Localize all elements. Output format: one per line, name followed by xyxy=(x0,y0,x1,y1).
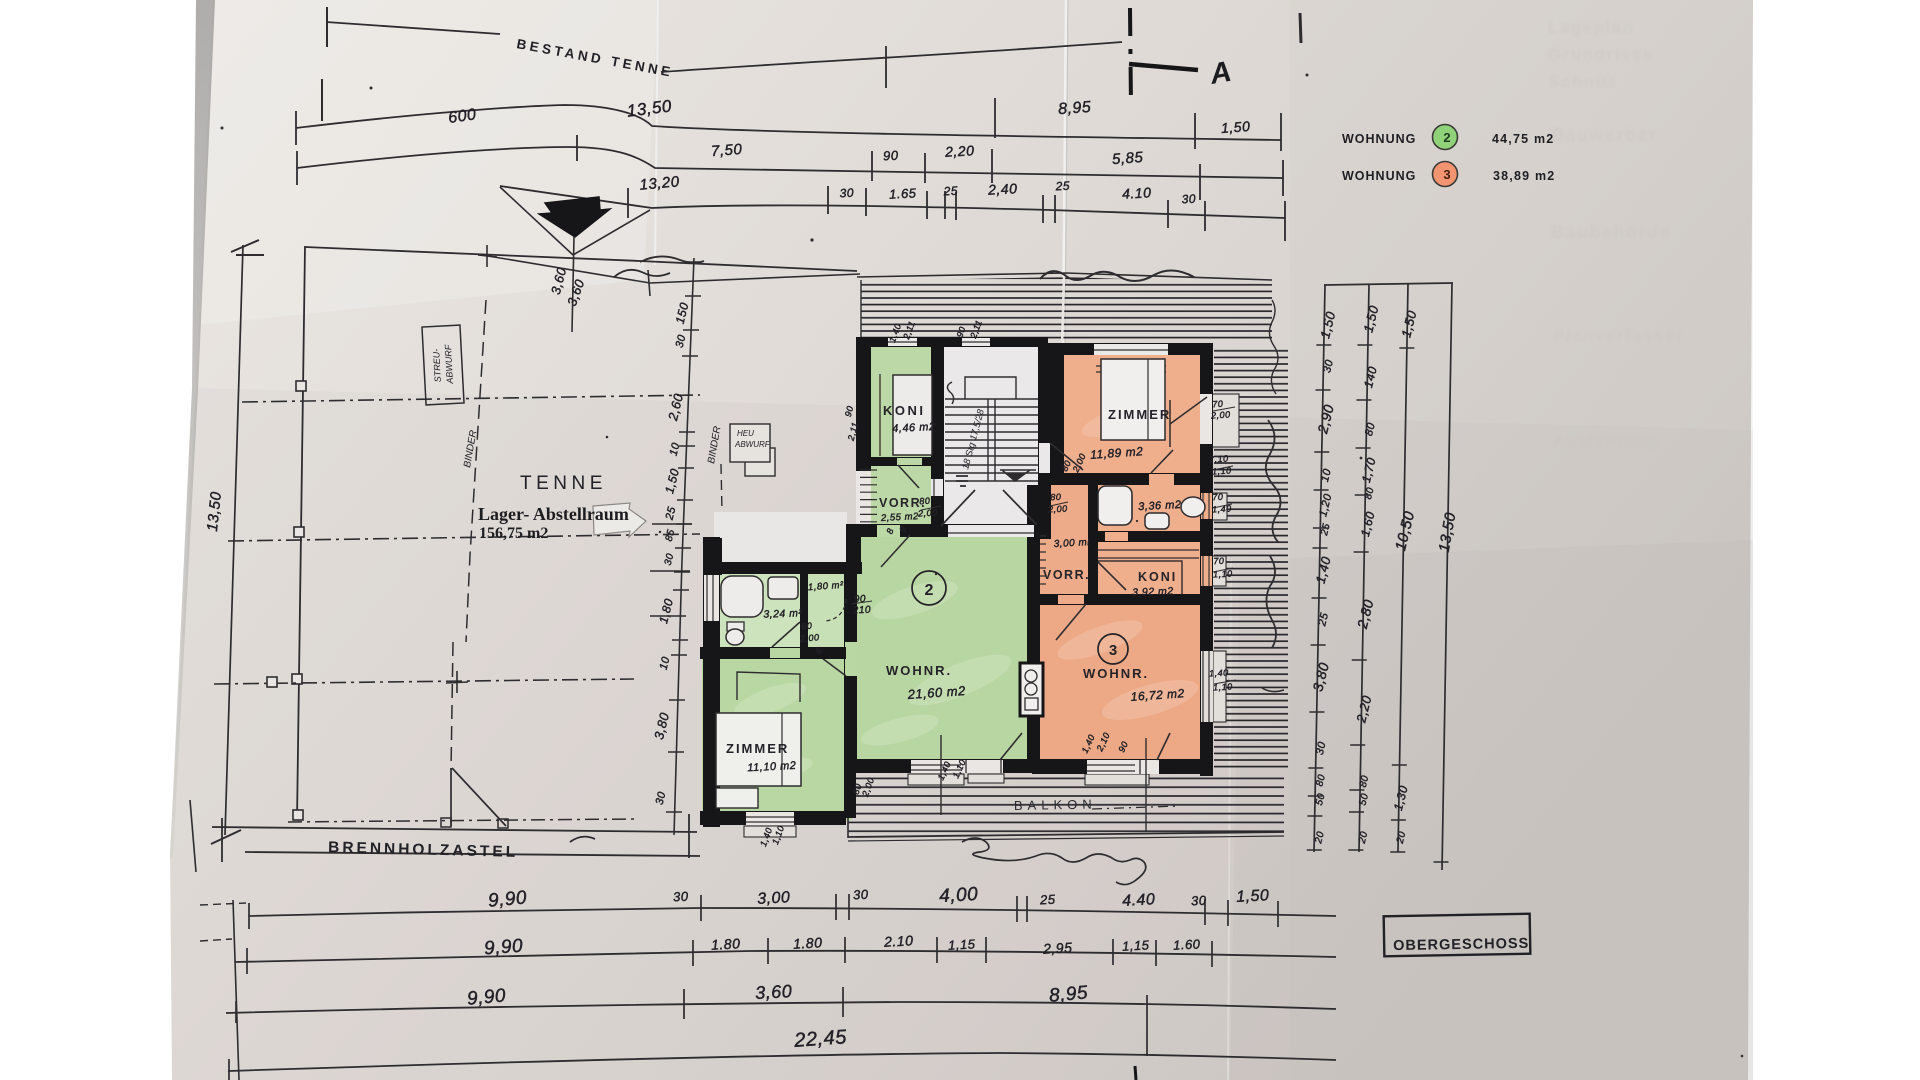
svg-text:BALKON: BALKON xyxy=(1014,797,1097,813)
svg-text:90: 90 xyxy=(883,148,899,164)
svg-text:80: 80 xyxy=(919,496,931,507)
svg-text:1,10: 1,10 xyxy=(1212,465,1232,476)
svg-text:25: 25 xyxy=(1039,892,1056,908)
svg-text:2,00: 2,00 xyxy=(1210,409,1231,420)
svg-text:Schnitt: Schnitt xyxy=(1548,72,1616,91)
svg-text:2: 2 xyxy=(925,582,934,599)
svg-text:8,95: 8,95 xyxy=(1048,982,1089,1006)
svg-text:9,90: 9,90 xyxy=(483,936,523,960)
svg-text:8,95: 8,95 xyxy=(1058,99,1092,118)
svg-text:70: 70 xyxy=(1213,556,1225,567)
svg-text:30: 30 xyxy=(1181,192,1196,207)
svg-text:80: 80 xyxy=(1050,492,1062,503)
svg-text:9,90: 9,90 xyxy=(466,985,507,1009)
svg-text:30: 30 xyxy=(673,889,689,905)
svg-text:7,10: 7,10 xyxy=(1209,453,1229,464)
svg-text:2,55 m2: 2,55 m2 xyxy=(880,511,920,524)
svg-text:2,40: 2,40 xyxy=(987,180,1018,198)
svg-text:4.10: 4.10 xyxy=(1122,184,1152,202)
svg-text:WOHNUNG: WOHNUNG xyxy=(1342,169,1416,183)
svg-text:3: 3 xyxy=(1443,167,1450,182)
svg-text:1,10: 1,10 xyxy=(1213,681,1233,692)
svg-text:ABWURF: ABWURF xyxy=(443,344,455,385)
svg-text:ZIMMER: ZIMMER xyxy=(1108,407,1171,422)
svg-text:30: 30 xyxy=(839,186,854,201)
svg-text:1.80: 1.80 xyxy=(711,935,741,953)
svg-text:1,40: 1,40 xyxy=(1209,667,1229,678)
svg-text:OBERGESCHOSS: OBERGESCHOSS xyxy=(1393,936,1529,954)
svg-text:2: 2 xyxy=(1443,130,1450,145)
svg-text:1,15: 1,15 xyxy=(948,936,976,952)
svg-text:25: 25 xyxy=(942,184,958,199)
svg-text:Ausführung: Ausführung xyxy=(1553,433,1659,450)
svg-text:22,45: 22,45 xyxy=(793,1026,848,1052)
svg-text:1.60: 1.60 xyxy=(1173,936,1201,952)
svg-text:HEU: HEU xyxy=(737,429,754,438)
svg-text:Baubehörde: Baubehörde xyxy=(1551,222,1671,242)
svg-text:2,00: 2,00 xyxy=(1047,503,1068,514)
svg-text:3,92 m2: 3,92 m2 xyxy=(1132,585,1174,598)
svg-text:1.80: 1.80 xyxy=(793,934,823,952)
svg-text:3,00: 3,00 xyxy=(757,889,791,908)
svg-text:Lageplan: Lageplan xyxy=(1548,18,1635,37)
svg-text:2,95: 2,95 xyxy=(1042,939,1073,957)
svg-text:TENNE: TENNE xyxy=(520,473,607,494)
svg-text:3,60: 3,60 xyxy=(755,981,793,1003)
svg-text:2,00: 2,00 xyxy=(799,632,820,644)
svg-text:2.10: 2.10 xyxy=(883,932,914,950)
svg-text:1,40: 1,40 xyxy=(1212,503,1232,514)
svg-text:30: 30 xyxy=(853,887,869,903)
svg-text:11,10 m2: 11,10 m2 xyxy=(747,760,797,775)
svg-text:1,15: 1,15 xyxy=(1122,937,1150,953)
svg-text:1,10: 1,10 xyxy=(1213,568,1233,579)
svg-text:3,24 m²: 3,24 m² xyxy=(763,607,803,620)
svg-text:210: 210 xyxy=(852,605,872,617)
svg-text:Bauwerber: Bauwerber xyxy=(1551,125,1658,145)
svg-text:Grundrisse: Grundrisse xyxy=(1548,45,1654,64)
svg-text:WOHNR.: WOHNR. xyxy=(886,663,952,678)
svg-text:60: 60 xyxy=(801,621,813,632)
svg-text:ZIMMER: ZIMMER xyxy=(726,741,789,756)
svg-text:156,75 m2: 156,75 m2 xyxy=(479,525,548,542)
svg-text:4,00: 4,00 xyxy=(939,884,979,907)
svg-text:WOHNR.: WOHNR. xyxy=(1083,666,1149,681)
svg-text:7,50: 7,50 xyxy=(711,141,743,160)
svg-text:VORR.: VORR. xyxy=(1043,568,1090,582)
svg-text:38,89 m2: 38,89 m2 xyxy=(1493,169,1555,183)
svg-text:70: 70 xyxy=(1212,399,1224,410)
svg-text:3,00 ml: 3,00 ml xyxy=(1053,537,1090,550)
svg-text:2,20: 2,20 xyxy=(944,142,975,160)
svg-text:Lager- Abstellraum: Lager- Abstellraum xyxy=(478,504,629,524)
svg-text:1,50: 1,50 xyxy=(1236,887,1270,906)
svg-text:3,36 m2: 3,36 m2 xyxy=(1138,499,1182,513)
svg-text:30: 30 xyxy=(1191,893,1207,909)
svg-text:1.65: 1.65 xyxy=(889,185,917,201)
svg-text:44,75 m2: 44,75 m2 xyxy=(1492,132,1554,146)
svg-text:70: 70 xyxy=(1212,492,1224,503)
svg-text:5,85: 5,85 xyxy=(1112,149,1144,168)
svg-text:4,46 m2: 4,46 m2 xyxy=(892,421,936,435)
svg-text:25: 25 xyxy=(1054,179,1070,194)
svg-text:STREU-: STREU- xyxy=(431,349,443,383)
svg-text:1,50: 1,50 xyxy=(1221,118,1251,136)
svg-text:9,90: 9,90 xyxy=(487,887,528,911)
svg-text:13,20: 13,20 xyxy=(639,173,681,193)
svg-text:WOHNUNG: WOHNUNG xyxy=(1342,132,1416,146)
svg-text:KONI: KONI xyxy=(1138,570,1177,584)
svg-text:KONI: KONI xyxy=(883,403,926,418)
svg-text:3: 3 xyxy=(1109,642,1117,659)
svg-text:ABWURF: ABWURF xyxy=(734,440,771,449)
svg-text:4.40: 4.40 xyxy=(1122,891,1156,910)
svg-text:Planverfasser: Planverfasser xyxy=(1553,326,1684,345)
svg-text:2,00: 2,00 xyxy=(917,507,938,518)
